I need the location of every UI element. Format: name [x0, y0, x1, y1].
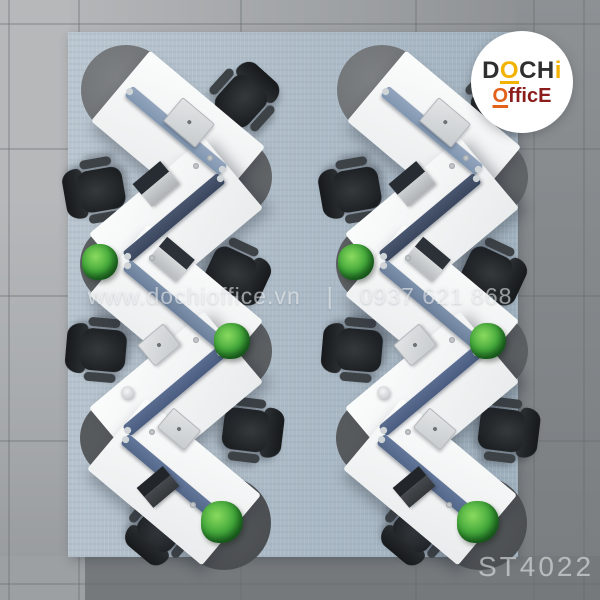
office-workstation-product-photo: www.dochioffice.vn | 0937 621 868 DOCHi …: [0, 0, 600, 600]
chair-seat: [221, 406, 271, 453]
watermark-website: www.dochioffice.vn: [88, 283, 301, 310]
logo-letter: fficE: [508, 85, 551, 107]
desk-grommet: [449, 163, 455, 169]
tile-grout-line: [0, 583, 600, 585]
desk-grommet: [190, 502, 196, 508]
desk-grommet: [149, 255, 155, 261]
tile-grout-line: [0, 23, 600, 25]
floor-tile-left: [0, 0, 70, 556]
logo-letter-accent: i: [555, 57, 562, 84]
desk-grommet: [463, 155, 469, 161]
floor-tile-top: [70, 0, 516, 36]
logo-letter: D: [482, 57, 500, 84]
chair-armrest: [344, 317, 377, 329]
desk-grommet: [193, 163, 199, 169]
chair-armrest: [88, 317, 121, 329]
logo-subtitle: OfficE: [493, 84, 552, 108]
desk-grommet: [446, 502, 452, 508]
desk-grommet: [193, 337, 199, 343]
product-code: ST4022: [478, 551, 594, 583]
watermark: www.dochioffice.vn | 0937 621 868: [0, 283, 600, 310]
chair-seat: [335, 327, 383, 373]
logo-brand-name: DOCHi: [482, 58, 562, 83]
desk-grommet: [405, 429, 411, 435]
desk-grommet: [405, 255, 411, 261]
logo-letter-accent: O: [493, 85, 509, 107]
chair-seat: [79, 327, 127, 373]
coffee-cup: [121, 386, 134, 399]
logo-letter: CH: [519, 57, 555, 84]
watermark-phone: 0937 621 868: [360, 283, 513, 310]
floor-tile-bottom-left: [0, 556, 85, 600]
desk-grommet: [149, 429, 155, 435]
logo-badge: DOCHi OfficE: [471, 31, 573, 133]
chair-seat: [477, 406, 527, 453]
watermark-separator: |: [327, 283, 334, 310]
desk-grommet: [449, 337, 455, 343]
desk-grommet: [207, 155, 213, 161]
coffee-cup: [377, 386, 390, 399]
logo-letter-accent: O: [500, 57, 519, 84]
